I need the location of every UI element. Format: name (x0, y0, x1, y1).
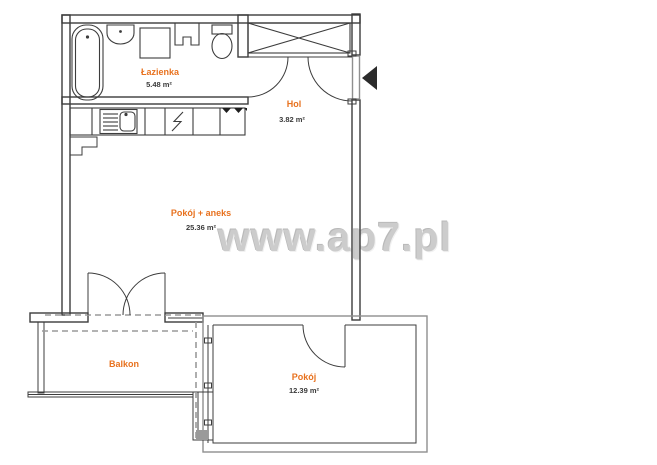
wall-right-upper (352, 14, 360, 55)
balcony-left-wall (38, 322, 44, 393)
bedroom-outer-wall (203, 316, 427, 452)
living-room-area: 25.36 m² (186, 223, 217, 232)
shower-unit-icon (140, 28, 170, 58)
bathroom-door-swing (248, 57, 288, 97)
bathtub-icon (72, 25, 103, 100)
balcony-label: Balkon (109, 359, 139, 369)
exterior-walls (30, 14, 360, 322)
kitchen-counter (70, 108, 247, 135)
floorplan-drawing: Łazienka 5.48 m² Hol 3.82 m² Pokój + ane… (0, 0, 657, 465)
entrance-door-panel (353, 56, 360, 99)
hall-label: Hol (287, 99, 302, 109)
duct-icon (175, 23, 199, 45)
living-room-label: Pokój + aneks (171, 208, 231, 218)
wall-bathroom-right (238, 15, 248, 57)
wall-left (62, 15, 70, 315)
bathroom-area: 5.48 m² (146, 80, 172, 89)
bathroom-label: Łazienka (141, 67, 180, 77)
bedroom-door-swing (303, 325, 345, 367)
floorplan-canvas: www.ap7.pl (0, 0, 657, 465)
wall-step (70, 137, 97, 155)
junction-fill (196, 430, 208, 440)
bedroom-inner-wall (213, 325, 416, 443)
balcony-french-doors (88, 273, 165, 315)
hall-area: 3.82 m² (279, 115, 305, 124)
room-labels: Łazienka 5.48 m² Hol 3.82 m² Pokój + ane… (109, 67, 320, 395)
stove-lightning-icon (172, 112, 183, 131)
bedroom-walls (193, 316, 427, 452)
toilet-icon (212, 25, 232, 59)
wall-top (62, 15, 360, 23)
counter-outline (70, 108, 245, 135)
washbasin-icon (107, 25, 134, 44)
wall-right-lower (352, 100, 360, 320)
bedroom-door (303, 325, 345, 367)
bedroom-area: 12.39 m² (289, 386, 320, 395)
hob-marks-icon (222, 108, 247, 113)
bedroom-label: Pokój (292, 372, 317, 382)
bathroom-door (248, 57, 288, 97)
overhang-dashed-lines (42, 315, 203, 440)
entrance-arrow-icon (362, 66, 377, 90)
entrance-door (308, 51, 377, 104)
kitchen-sink-icon (100, 110, 137, 134)
entrance-door-swing (308, 57, 352, 101)
wardrobe-x-icon (248, 23, 350, 57)
